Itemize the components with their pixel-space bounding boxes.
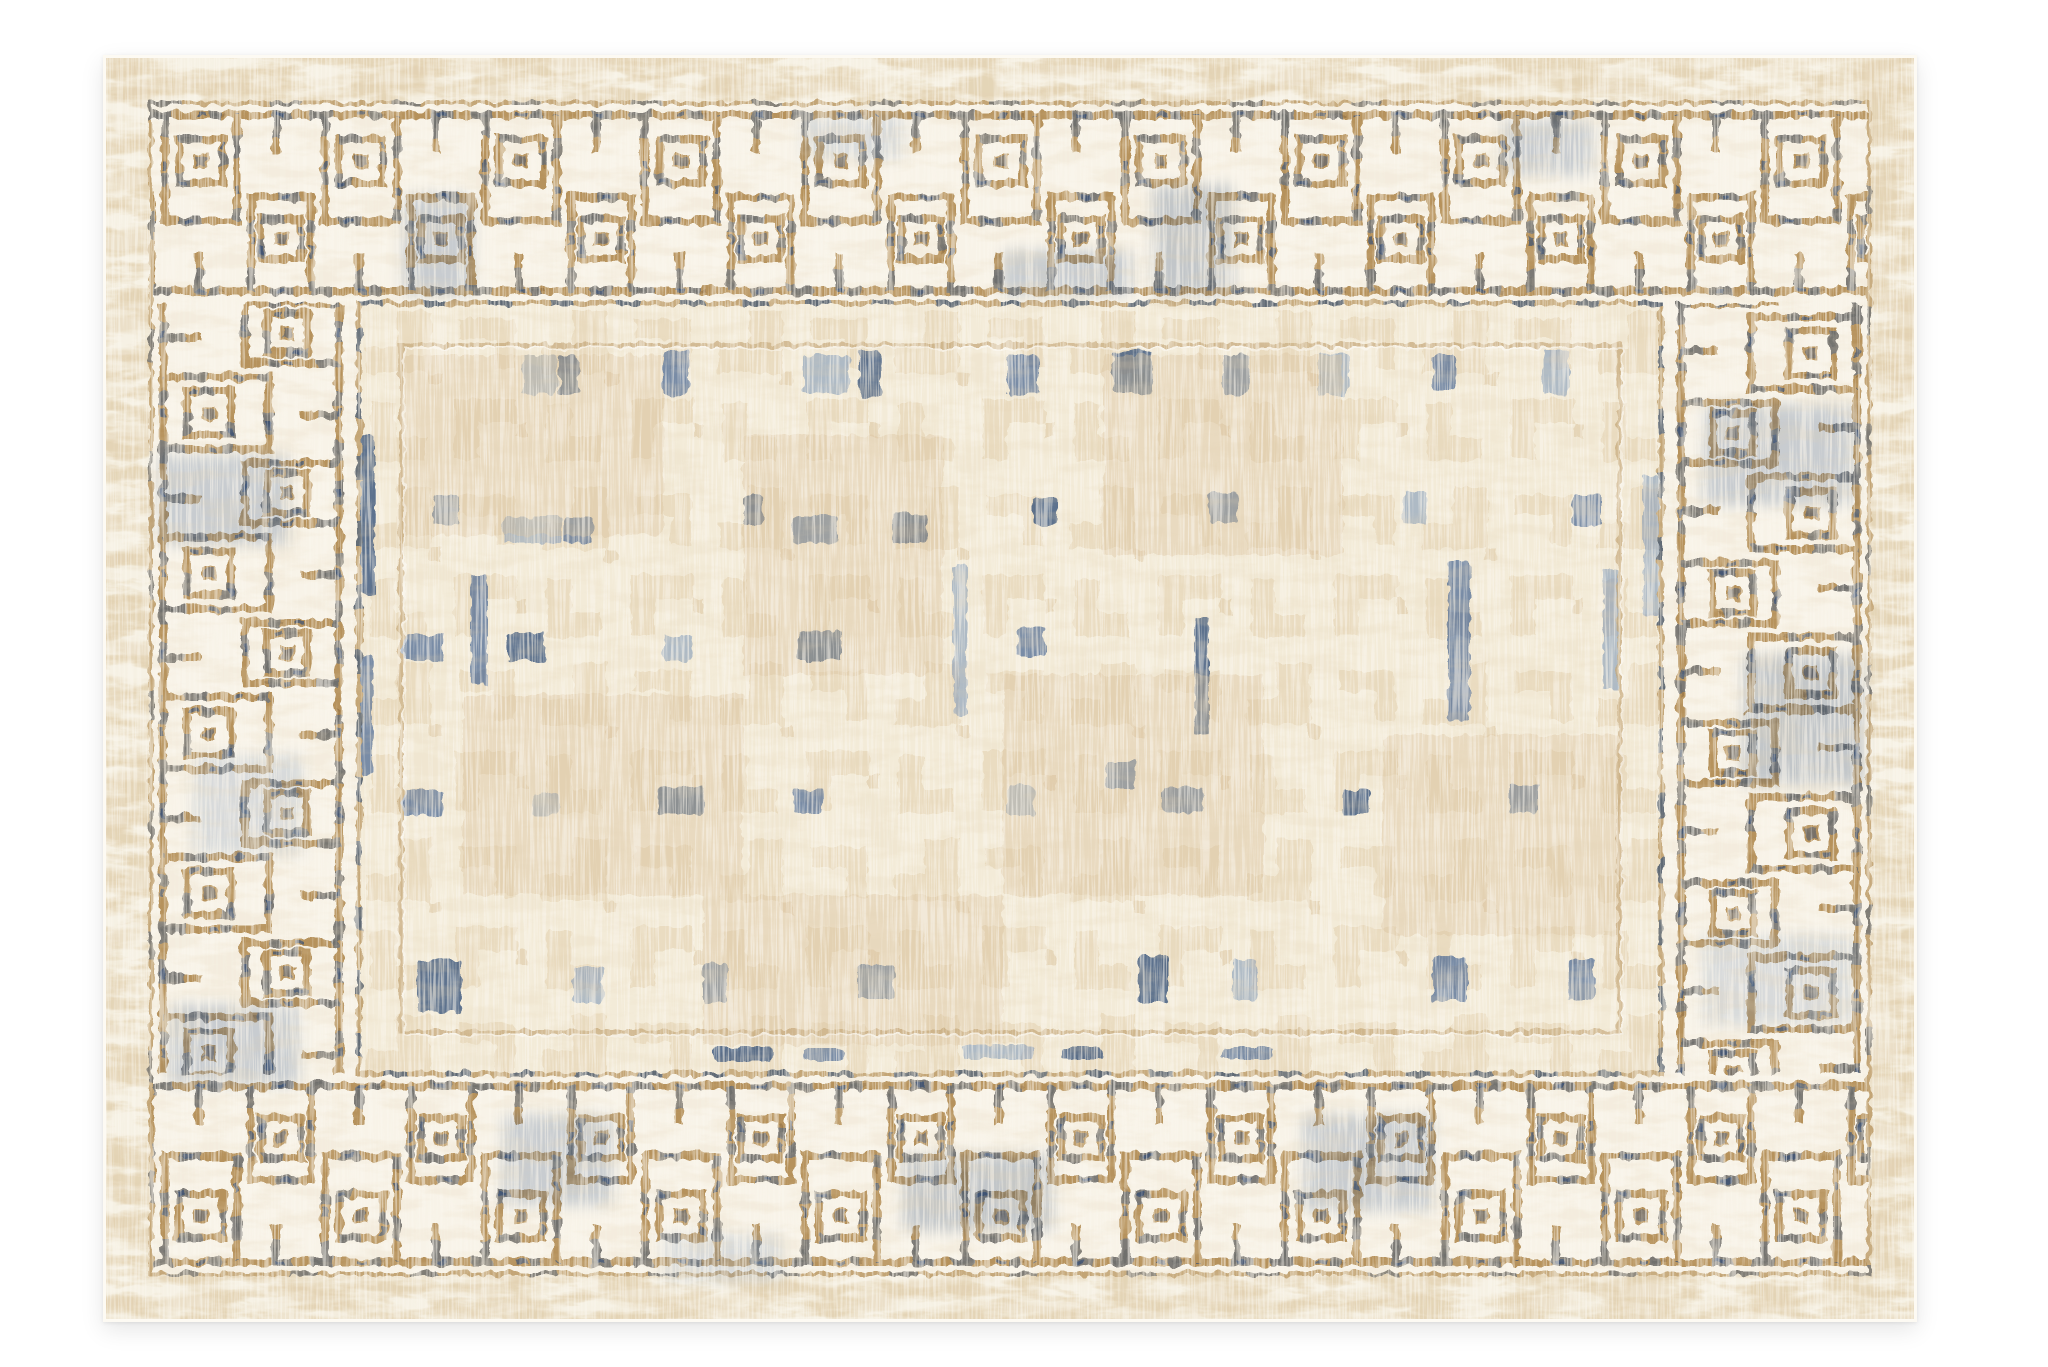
- pile-warmth: [103, 55, 1917, 1322]
- rug-photo: [103, 55, 1917, 1322]
- rug-image: [103, 55, 1917, 1322]
- photo-backdrop: [0, 0, 2048, 1367]
